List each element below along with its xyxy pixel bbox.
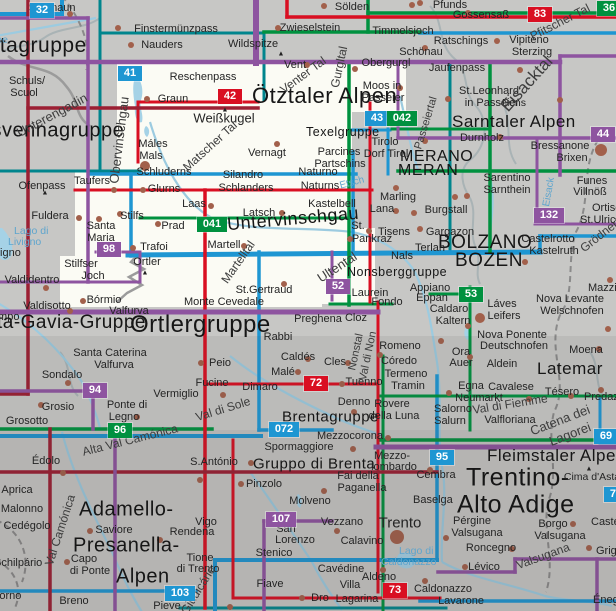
town-label: Reschenpass bbox=[170, 71, 237, 83]
town-label: Timmelsjoch bbox=[372, 25, 433, 37]
town-label: Cima d'Asta bbox=[564, 471, 616, 483]
town-label: Énego bbox=[593, 594, 616, 606]
sheet-badge-36[interactable]: 36 bbox=[597, 1, 616, 16]
town-label: Nauders bbox=[141, 39, 183, 51]
region-label: Adamello- bbox=[79, 499, 174, 522]
sheet-badge-73[interactable]: 73 bbox=[383, 583, 407, 598]
town-label: Termeno bbox=[385, 368, 428, 380]
region-label: Fleimstaler Alpen bbox=[487, 446, 616, 466]
town-label: Pérgine bbox=[453, 515, 491, 527]
town-label: Welschnofen bbox=[540, 305, 603, 317]
town-label: Leifers bbox=[487, 310, 520, 322]
town-label: Fiave bbox=[257, 578, 284, 590]
town-label: Schlanders bbox=[218, 182, 273, 194]
sheet-badge-69[interactable]: 69 bbox=[594, 429, 616, 444]
town-label: Ortler bbox=[133, 256, 161, 268]
town-label: Vezzano bbox=[321, 516, 363, 528]
town-label: Paganella bbox=[338, 482, 387, 494]
town-label: St. bbox=[351, 220, 364, 232]
town-label: Valdisotto bbox=[23, 300, 71, 312]
town-label: Baselga bbox=[413, 494, 453, 506]
sheet-badge-43[interactable]: 43 bbox=[365, 111, 389, 126]
town-label: Fuldera bbox=[31, 210, 68, 222]
town-label: Campo bbox=[0, 311, 19, 323]
sheet-badge-42[interactable]: 42 bbox=[218, 89, 242, 104]
sheet-badge-041[interactable]: 041 bbox=[197, 217, 227, 232]
town-label: Naturns bbox=[301, 180, 340, 192]
town-label: Dimaro bbox=[242, 381, 277, 393]
town-label: Wildspitze bbox=[228, 38, 278, 50]
town-label: Schuls/ bbox=[9, 75, 45, 87]
water-label: Caldonazzo bbox=[381, 556, 436, 568]
town-label: Fondo bbox=[371, 296, 402, 308]
town-label: Nals bbox=[391, 250, 413, 262]
town-label: Brixen bbox=[556, 152, 587, 164]
sheet-badge-95[interactable]: 95 bbox=[430, 450, 454, 465]
town-label: Sölden bbox=[335, 1, 369, 13]
town-label: S.António bbox=[190, 456, 238, 468]
region-label: Latemar bbox=[537, 359, 603, 379]
town-label: Rovere bbox=[374, 398, 409, 410]
town-label: Cavédine bbox=[318, 563, 364, 575]
town-label: Valsugana bbox=[534, 530, 585, 542]
town-label: Preghena bbox=[294, 313, 342, 325]
town-label: Vermiglio bbox=[153, 388, 198, 400]
town-label: Parcines bbox=[318, 146, 361, 158]
water-label: Eisack bbox=[541, 177, 557, 208]
town-label: Predazzo bbox=[584, 391, 616, 403]
town-label: Burgstall bbox=[425, 204, 468, 216]
town-label: Moos in bbox=[363, 80, 402, 92]
town-label: Silandro bbox=[223, 169, 263, 181]
sheet-badge-32[interactable]: 32 bbox=[30, 3, 54, 18]
town-label: Fai della bbox=[337, 470, 379, 482]
town-label: Aldein bbox=[487, 358, 518, 370]
town-label: Martell bbox=[207, 239, 240, 251]
town-label: Castello bbox=[591, 516, 616, 528]
town-label: Dro bbox=[311, 592, 329, 604]
town-label: Rendena bbox=[170, 526, 215, 538]
sheet-badge-103[interactable]: 103 bbox=[165, 586, 195, 601]
town-label: Malé bbox=[271, 366, 295, 378]
town-label: Vernagt bbox=[248, 147, 286, 159]
sheet-badge-41[interactable]: 41 bbox=[118, 66, 142, 81]
town-label: Lana bbox=[370, 203, 394, 215]
town-label: Nova Levante bbox=[536, 293, 604, 305]
sheet-badge-107[interactable]: 107 bbox=[266, 512, 296, 527]
region-label: Alpen bbox=[116, 566, 170, 589]
valley-label: Val di Sole bbox=[194, 394, 252, 424]
peak-icon: ▲ bbox=[222, 107, 229, 114]
town-label: Trafoi bbox=[140, 241, 168, 253]
town-label: Lagarina bbox=[336, 593, 379, 605]
sheet-badge-96[interactable]: 96 bbox=[108, 423, 132, 438]
town-label: Borno bbox=[0, 590, 21, 602]
town-label: Édolo bbox=[32, 455, 60, 467]
town-label: Roncegno bbox=[466, 542, 516, 554]
town-label: Lavarone bbox=[438, 595, 484, 607]
town-label: Denno bbox=[338, 396, 370, 408]
sheet-badge-072[interactable]: 072 bbox=[269, 422, 299, 437]
town-label: Valsugana bbox=[451, 527, 502, 539]
town-label: Stilfs bbox=[120, 210, 144, 222]
town-label: Cembra bbox=[416, 469, 455, 481]
town-label: Bressanone bbox=[531, 140, 590, 152]
sheet-badge-98[interactable]: 98 bbox=[97, 242, 121, 257]
town-label: Gargazon bbox=[426, 226, 474, 238]
town-label: Láves bbox=[487, 298, 516, 310]
town-label: Graun bbox=[158, 93, 189, 105]
town-label: Castelrotto bbox=[521, 233, 574, 245]
town-label: Passeier bbox=[362, 92, 405, 104]
peak-icon: ▲ bbox=[42, 190, 49, 197]
town-label: Pieve bbox=[153, 600, 181, 611]
town-label: Egna bbox=[458, 380, 484, 392]
town-label: Rabbi bbox=[264, 331, 293, 343]
town-label: Monte Cevedale bbox=[184, 296, 264, 308]
sheet-badge-53[interactable]: 53 bbox=[459, 287, 483, 302]
town-label: Máles bbox=[138, 138, 167, 150]
map-label-layer: SilvrettagruppeSesvennagruppeSobretta-Ga… bbox=[0, 0, 616, 611]
town-label: Tésero bbox=[545, 386, 579, 398]
town-label: Kastelbell bbox=[308, 198, 356, 210]
town-label: Zwieselstein bbox=[280, 22, 341, 34]
town-label: Moena bbox=[569, 344, 603, 356]
sheet-badge-83[interactable]: 83 bbox=[528, 7, 552, 22]
town-label: Ponte di bbox=[107, 399, 147, 411]
town-label: Terlan bbox=[415, 242, 445, 254]
region-label: Trentino- bbox=[466, 464, 570, 493]
town-label: Spormaggiore bbox=[264, 441, 333, 453]
town-label: Kastelruth bbox=[529, 245, 579, 257]
town-label: Stenico bbox=[256, 547, 293, 559]
town-label: Salurn bbox=[434, 415, 466, 427]
town-label: Malonno bbox=[1, 503, 43, 515]
town-label: Valfurva bbox=[109, 305, 149, 317]
town-label: della Luna bbox=[369, 410, 420, 422]
town-label: Tramin bbox=[391, 380, 425, 392]
town-label: St.Gertraud bbox=[236, 284, 293, 296]
town-label: Lorenzo bbox=[275, 534, 315, 546]
sheet-badge-042[interactable]: 042 bbox=[387, 111, 417, 126]
town-label: Aldeno bbox=[362, 571, 396, 583]
peak-icon: ▲ bbox=[586, 466, 593, 473]
town-label: Durnholz bbox=[460, 132, 504, 144]
town-label: Legno bbox=[109, 411, 140, 423]
region-label: Sarntaler Alpen bbox=[452, 112, 576, 132]
town-label: Livigno bbox=[0, 247, 21, 259]
town-label: Cloz bbox=[345, 312, 367, 324]
peak-icon: ▲ bbox=[278, 51, 285, 58]
water-label: Livigno bbox=[8, 236, 41, 248]
sheet-badge-132[interactable]: 132 bbox=[534, 208, 564, 223]
town-label: Santa Caterina bbox=[73, 347, 146, 359]
town-label: Pinzolo bbox=[246, 478, 282, 490]
valley-label: Eisacktal bbox=[497, 52, 557, 116]
town-label: Cedégolo bbox=[3, 520, 50, 532]
town-label: Taufers bbox=[74, 175, 110, 187]
town-label: Prad bbox=[161, 220, 184, 232]
town-label: Santa bbox=[87, 220, 116, 232]
water-label: Silvretta-Stausee bbox=[0, 34, 8, 46]
town-label: Villnöß bbox=[573, 186, 606, 198]
region-label: MERAN bbox=[398, 162, 458, 180]
town-label: Finstermünzpass bbox=[134, 23, 218, 35]
town-label: Borgo bbox=[538, 518, 567, 530]
town-label: Schilpário bbox=[0, 557, 42, 569]
town-label: Salorno bbox=[434, 403, 472, 415]
town-label: Grigno bbox=[596, 545, 616, 557]
town-label: Grosio bbox=[42, 401, 74, 413]
region-label: BOZEN bbox=[455, 250, 523, 272]
town-label: Sarnthein bbox=[483, 184, 530, 196]
valley-label: Valsugana bbox=[514, 540, 571, 572]
town-label: Caldés bbox=[281, 351, 315, 363]
town-label: Tisens bbox=[378, 226, 410, 238]
water-label: Etsch bbox=[338, 174, 365, 191]
sheet-badge-94[interactable]: 94 bbox=[83, 383, 107, 398]
town-label: Capo bbox=[71, 553, 97, 565]
town-label: Breno bbox=[59, 595, 88, 607]
town-label: Naturno bbox=[298, 166, 337, 178]
town-label: Romeno bbox=[379, 340, 421, 352]
sheet-badge-72[interactable]: 72 bbox=[304, 376, 328, 391]
town-label: Stilfser bbox=[64, 258, 98, 270]
sheet-badge-44[interactable]: 44 bbox=[591, 127, 615, 142]
town-label: Sarentino bbox=[483, 172, 530, 184]
town-label: Jaufenpass bbox=[429, 62, 485, 74]
town-label: Glurns bbox=[148, 183, 180, 195]
map-canvas[interactable]: SilvrettagruppeSesvennagruppeSobretta-Ga… bbox=[0, 0, 616, 611]
town-label: Villa bbox=[340, 579, 361, 591]
peak-icon: ▲ bbox=[142, 270, 149, 277]
town-label: Gossensaß bbox=[453, 9, 509, 21]
town-label: Joch bbox=[81, 270, 104, 282]
town-label: Córedo bbox=[381, 355, 417, 367]
region-label: Silvrettagruppe bbox=[0, 34, 87, 58]
town-label: Cavalese bbox=[488, 381, 534, 393]
town-label: Valdidentro bbox=[5, 274, 60, 286]
town-label: Grosotto bbox=[6, 415, 48, 427]
region-label: Nonsberggruppe bbox=[347, 265, 447, 279]
town-label: Fucine bbox=[195, 377, 228, 389]
town-label: Aprica bbox=[1, 484, 32, 496]
town-label: Ortisei bbox=[592, 202, 616, 214]
town-label: Molveno bbox=[289, 495, 331, 507]
town-label: Laas bbox=[182, 198, 206, 210]
town-label: Obergurgl bbox=[362, 57, 411, 69]
town-label: Dorf Tirol bbox=[364, 148, 409, 160]
town-label: Deutschnofen bbox=[480, 340, 548, 352]
town-label: Valfurva bbox=[94, 359, 134, 371]
town-label: Mals bbox=[139, 150, 162, 162]
town-label: Tirolo bbox=[371, 136, 398, 148]
town-label: Calavino bbox=[341, 535, 384, 547]
town-label: Caldonazzo bbox=[414, 583, 472, 595]
town-label: Auer bbox=[449, 357, 472, 369]
town-label: Saviore bbox=[95, 524, 132, 536]
sheet-badge-52[interactable]: 52 bbox=[326, 279, 350, 294]
town-label: Scuol bbox=[10, 87, 38, 99]
valley-label: Matscher Tal bbox=[180, 118, 240, 174]
town-label: Sondalo bbox=[42, 369, 82, 381]
town-label: Trento bbox=[379, 515, 422, 532]
sheet-badge-75[interactable]: 75 bbox=[604, 487, 616, 502]
town-label: Latsch bbox=[243, 207, 275, 219]
town-label: Mazzin bbox=[588, 282, 616, 294]
region-label: Ortlergruppe bbox=[130, 311, 271, 339]
town-label: Lévico bbox=[468, 561, 500, 573]
town-label: Marling bbox=[380, 191, 416, 203]
region-label: Texelgruppe bbox=[306, 125, 380, 139]
town-label: Caldaro bbox=[430, 303, 469, 315]
town-label: Kaltern bbox=[436, 315, 471, 327]
town-label: di Ponte bbox=[70, 565, 110, 577]
town-label: Peio bbox=[209, 357, 231, 369]
town-label: Cles bbox=[324, 356, 346, 368]
